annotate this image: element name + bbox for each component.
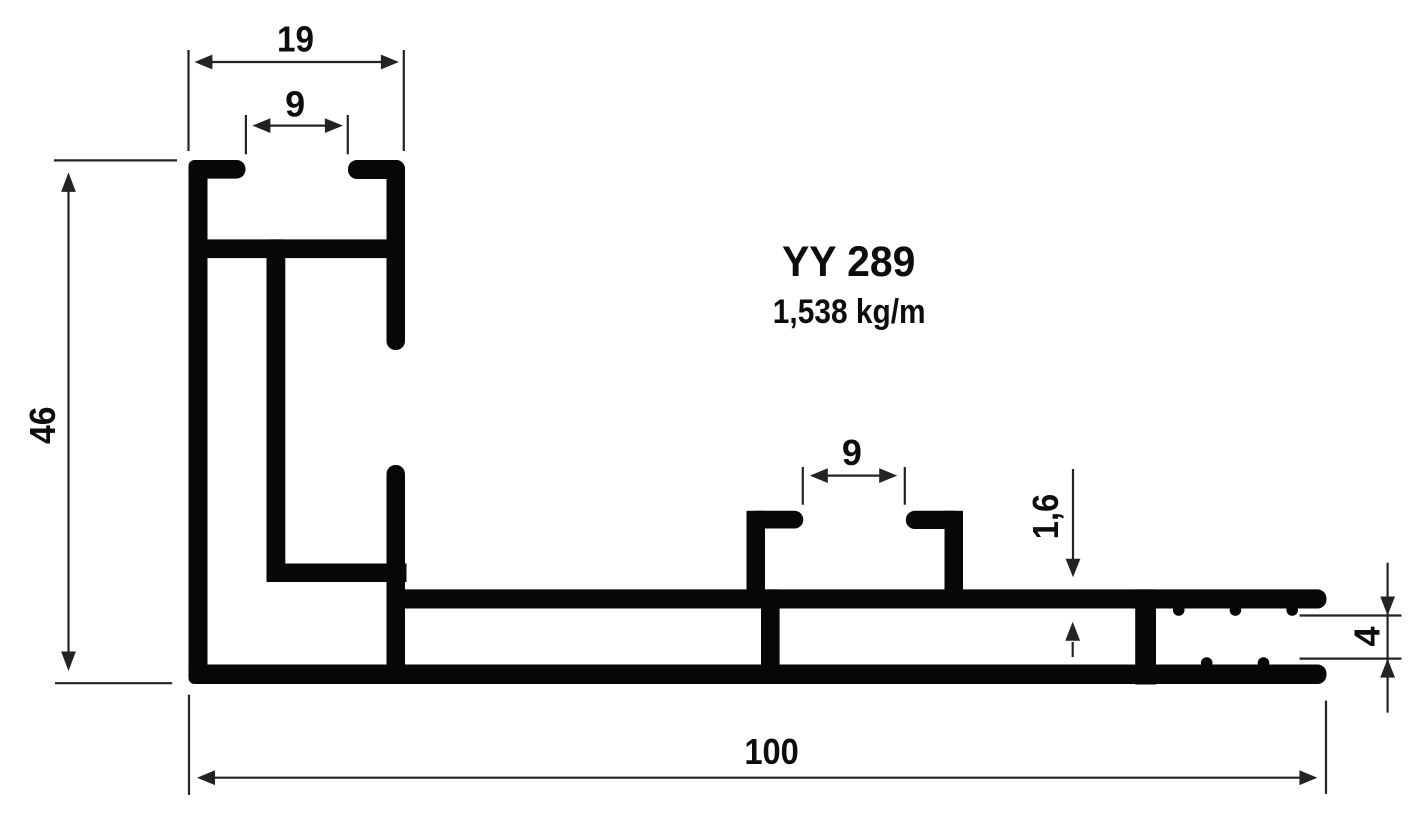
svg-text:9: 9 [285, 83, 305, 124]
svg-text:100: 100 [744, 731, 799, 772]
svg-text:9: 9 [842, 432, 862, 473]
svg-text:1,6: 1,6 [1025, 494, 1066, 540]
svg-text:19: 19 [277, 19, 314, 60]
svg-text:4: 4 [1347, 626, 1388, 646]
svg-text:46: 46 [22, 406, 63, 444]
svg-text:YY 289: YY 289 [782, 238, 916, 286]
svg-text:1,538 kg/m: 1,538 kg/m [773, 293, 926, 331]
